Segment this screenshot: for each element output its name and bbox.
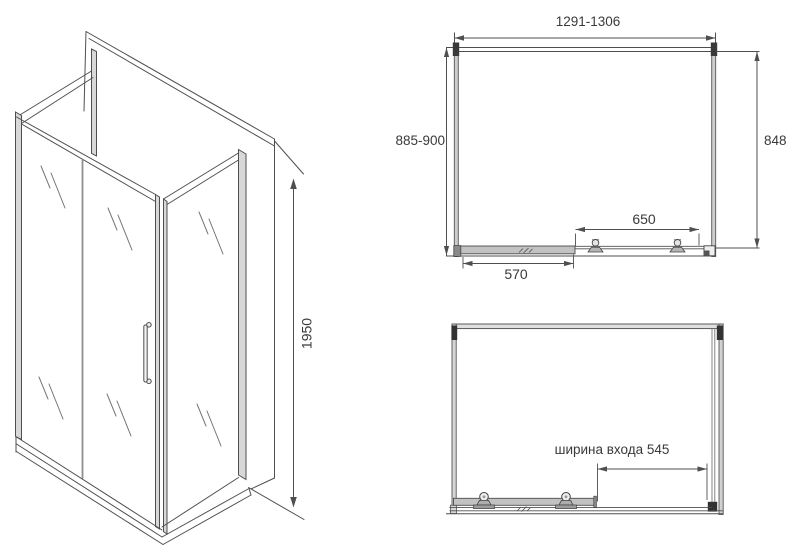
wall-bracket-icon — [711, 43, 717, 57]
plan-width-dimension — [455, 33, 716, 45]
inner-depth-dimension-label: 848 — [764, 133, 787, 148]
arrow-right-icon — [564, 261, 574, 266]
arrow-down-icon — [754, 239, 759, 249]
wall-bracket-icon — [453, 43, 459, 57]
plan-outline — [446, 43, 717, 257]
arrow-right-icon — [698, 466, 708, 471]
front-sliding-door — [454, 493, 597, 512]
arrow-down-icon — [444, 246, 449, 256]
front-view — [446, 324, 723, 515]
arrow-down-icon — [290, 497, 297, 508]
plan-view — [444, 33, 760, 269]
height-dimension-label: 1950 — [300, 304, 315, 364]
arrow-up-icon — [444, 48, 449, 58]
depth-dimension-label: 885-900 — [345, 133, 445, 148]
right-side-panel — [162, 150, 246, 528]
arrow-left-icon — [463, 261, 473, 266]
door-handle — [144, 323, 151, 384]
plan-inner-depth-dimension — [716, 52, 760, 249]
arrow-right-icon — [690, 227, 700, 232]
glass-hatch-marks — [39, 166, 223, 446]
front-entry-dimension — [598, 464, 708, 502]
roller-icon — [670, 240, 685, 253]
arrow-up-icon — [754, 52, 759, 62]
arrow-left-icon — [455, 35, 465, 41]
width-dimension-label: 1291-1306 — [528, 14, 648, 29]
wall-bracket-icon — [451, 326, 457, 341]
wall-bracket-icon — [708, 502, 717, 512]
base-tray — [16, 437, 275, 545]
line-art — [0, 0, 795, 553]
arrow-right-icon — [706, 35, 716, 41]
fixed-panel-dimension-label: 570 — [486, 267, 546, 282]
front-outline — [446, 324, 723, 515]
wall-bracket-icon — [717, 326, 723, 341]
rail-dimension-label: 650 — [614, 212, 674, 227]
arrow-left-icon — [598, 466, 608, 471]
arrow-left-icon — [576, 227, 586, 232]
entry-width-label: ширина входа 545 — [512, 442, 712, 457]
isometric-view — [16, 32, 305, 545]
arrow-up-icon — [290, 179, 297, 190]
roller-icon — [588, 240, 603, 253]
height-dimension-line — [249, 142, 305, 520]
plan-rail-assembly — [454, 240, 715, 257]
technical-drawing-shower-enclosure: 1291-1306 885-900 848 650 570 ширина вхо… — [0, 0, 795, 553]
plan-depth-dimension — [444, 48, 449, 256]
